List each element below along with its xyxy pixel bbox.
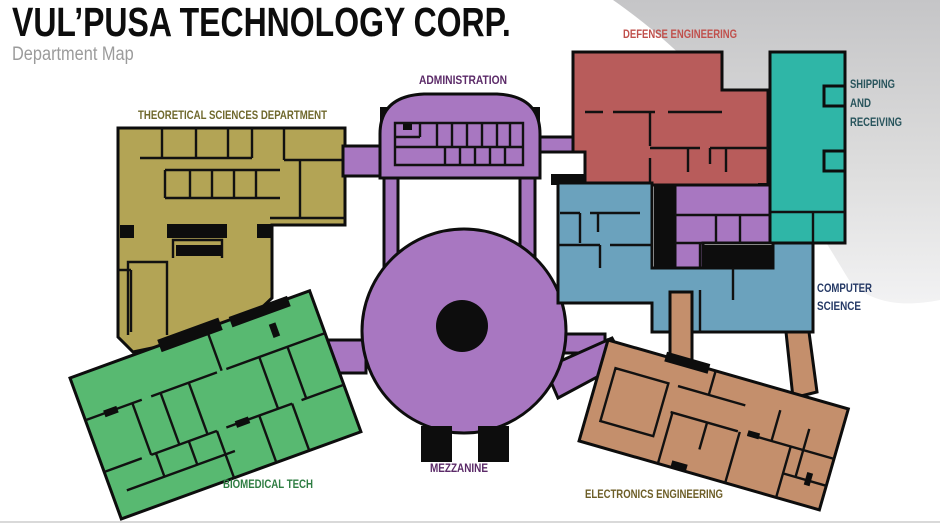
- loading-dock-upper: [824, 86, 845, 106]
- loading-dock-lower: [824, 151, 845, 171]
- label-shipping-line3: RECEIVING: [850, 117, 902, 129]
- label-computer-science: COMPUTER SCIENCE: [817, 283, 873, 313]
- biomedical-tech-building: [68, 285, 361, 519]
- company-title: VUL’PUSA TECHNOLOGY CORP.: [12, 2, 511, 43]
- computer-junction-wall: [654, 185, 675, 268]
- corridor-admin-to-defense: [536, 137, 576, 152]
- page-subtitle: Department Map: [12, 44, 562, 66]
- label-shipping-line2: AND: [850, 98, 871, 110]
- footer-divider: [0, 521, 940, 523]
- floor-plan-map: THEORETICAL SCIENCES DEPARTMENT ADMINIST…: [0, 0, 940, 529]
- computer-junction-band: [703, 245, 773, 268]
- shipping-receiving-building: [770, 52, 845, 243]
- admin-wall-accent: [403, 124, 412, 130]
- label-administration: ADMINISTRATION: [419, 75, 507, 87]
- rotunda-stair-left: [421, 426, 452, 462]
- label-computer-line1: COMPUTER: [817, 283, 873, 295]
- corridor-electronics-to-computer-west: [670, 292, 692, 364]
- rotunda-stair-right: [478, 426, 509, 462]
- label-shipping-line1: SHIPPING: [850, 79, 895, 91]
- label-theoretical-sciences: THEORETICAL SCIENCES DEPARTMENT: [138, 110, 327, 122]
- label-mezzanine: MEZZANINE: [430, 463, 488, 475]
- label-biomedical-tech: BIOMEDICAL TECH: [223, 479, 313, 491]
- rotunda-core: [436, 300, 488, 352]
- corridor-electronics-to-computer-east: [786, 332, 817, 398]
- label-computer-line2: SCIENCE: [817, 301, 861, 313]
- department-map-page: THEORETICAL SCIENCES DEPARTMENT ADMINIST…: [0, 0, 940, 529]
- map-header: VUL’PUSA TECHNOLOGY CORP. Department Map: [12, 2, 651, 66]
- label-electronics-engineering: ELECTRONICS ENGINEERING: [585, 489, 723, 501]
